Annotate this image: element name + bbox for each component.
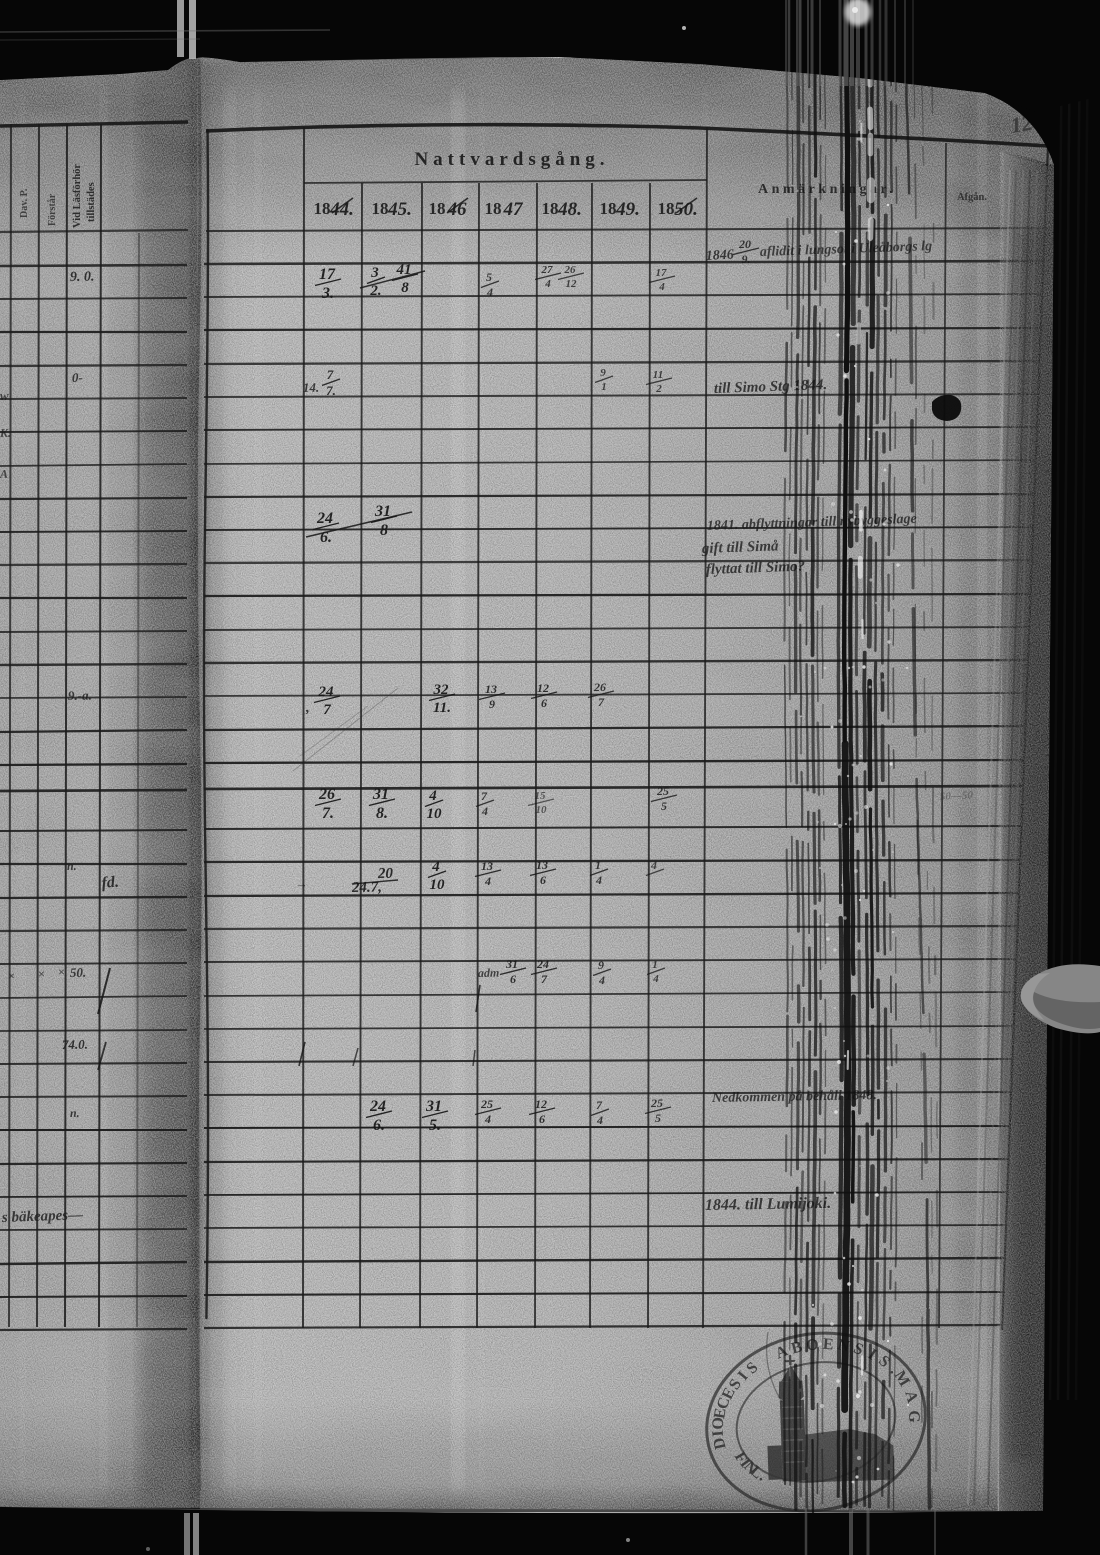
svg-text:7.: 7. (322, 805, 334, 822)
svg-text:44.: 44. (329, 199, 354, 220)
svg-text:4: 4 (658, 281, 665, 293)
svg-text:s bäkeapes—: s bäkeapes— (1, 1207, 84, 1226)
svg-text:6: 6 (541, 696, 547, 710)
svg-text:4: 4 (544, 278, 551, 290)
svg-text:Afgån.: Afgån. (957, 192, 987, 203)
svg-text:8: 8 (401, 280, 409, 296)
svg-text:18: 18 (485, 199, 502, 218)
svg-text:18: 18 (372, 199, 389, 218)
svg-text:Dav. P.: Dav. P. (19, 188, 30, 218)
svg-text:12: 12 (537, 681, 549, 695)
svg-text:K.: K. (0, 426, 11, 440)
svg-text:9.-a.: 9.-a. (68, 688, 92, 703)
svg-text:9: 9 (489, 697, 495, 711)
svg-text:9: 9 (600, 367, 606, 379)
svg-text:7: 7 (481, 789, 488, 803)
svg-text:25: 25 (650, 1096, 663, 1110)
svg-text:w: w (0, 388, 9, 403)
svg-text:×: × (8, 969, 15, 983)
svg-text:49.: 49. (615, 199, 640, 220)
svg-text:7: 7 (327, 367, 334, 382)
svg-text:13: 13 (481, 859, 493, 873)
svg-text:45.: 45. (387, 199, 412, 220)
svg-text:20: 20 (738, 237, 751, 251)
svg-text:1: 1 (652, 959, 658, 971)
svg-text:5: 5 (661, 799, 667, 813)
svg-text:×: × (58, 965, 65, 979)
svg-text:15: 15 (535, 790, 547, 802)
svg-text:9. 0.: 9. 0. (70, 270, 95, 285)
svg-text:6: 6 (539, 1112, 545, 1126)
svg-text:50.: 50. (674, 199, 698, 220)
svg-text:9.: 9. (742, 252, 751, 266)
svg-text:Anmärkningar.: Anmärkningar. (758, 182, 896, 197)
svg-text:4: 4 (484, 874, 491, 888)
svg-text:18: 18 (658, 199, 675, 218)
svg-text:4: 4 (650, 858, 657, 872)
svg-text:11: 11 (653, 369, 663, 381)
svg-text:7: 7 (598, 695, 605, 709)
svg-text:fd.: fd. (101, 874, 120, 892)
svg-text:5.: 5. (429, 1117, 441, 1134)
svg-text:1846: 1846 (705, 248, 734, 264)
svg-text:6: 6 (510, 972, 516, 986)
svg-text:4: 4 (431, 859, 440, 875)
svg-text:1: 1 (595, 858, 601, 872)
svg-text:1844. till Lumijoki.: 1844. till Lumijoki. (705, 1195, 832, 1214)
svg-text:24: 24 (536, 957, 549, 971)
svg-text:50.: 50. (70, 965, 87, 980)
svg-text:4: 4 (428, 788, 437, 804)
svg-text:7.: 7. (326, 383, 336, 398)
svg-text:8: 8 (380, 522, 388, 539)
svg-text:10: 10 (427, 806, 443, 822)
svg-text:A: A (0, 467, 8, 481)
svg-text:5: 5 (486, 270, 492, 284)
svg-text:7: 7 (596, 1098, 603, 1112)
svg-text:4: 4 (486, 285, 493, 299)
svg-text:11.: 11. (433, 700, 451, 716)
svg-text:26: 26 (564, 264, 577, 276)
svg-text:25: 25 (656, 784, 669, 798)
svg-text:4: 4 (481, 804, 488, 818)
svg-text:48.: 48. (557, 199, 582, 220)
svg-text:G: G (905, 1410, 922, 1423)
svg-text:74.0.: 74.0. (62, 1037, 88, 1052)
svg-text:tillstädes: tillstädes (86, 182, 97, 222)
svg-text:9: 9 (598, 958, 604, 972)
svg-text:n.: n. (70, 1106, 80, 1120)
svg-text:12: 12 (566, 278, 578, 290)
svg-text:6.: 6. (373, 1117, 385, 1134)
svg-text:2: 2 (655, 383, 662, 395)
svg-text:n.: n. (67, 859, 77, 873)
svg-text:14.: 14. (303, 380, 320, 395)
svg-text:13: 13 (485, 682, 497, 696)
svg-text:18: 18 (600, 199, 617, 218)
svg-text:17: 17 (656, 267, 668, 279)
svg-text:Förstår: Förstår (47, 193, 58, 226)
svg-text:46: 46 (447, 199, 468, 220)
svg-text:25: 25 (480, 1097, 493, 1111)
svg-text:0-: 0- (72, 370, 83, 385)
svg-text:18: 18 (542, 199, 559, 218)
svg-text:7: 7 (541, 972, 548, 986)
svg-text:3.: 3. (321, 285, 334, 302)
svg-text:31: 31 (505, 957, 518, 971)
svg-text:7: 7 (323, 702, 331, 718)
svg-text:→: → (295, 876, 308, 891)
svg-text:18: 18 (314, 199, 331, 218)
svg-text:4: 4 (595, 873, 602, 887)
svg-text:gift till Simå: gift till Simå (701, 538, 780, 557)
svg-text:5: 5 (655, 1111, 661, 1125)
svg-text:Vid Läsförhör: Vid Läsförhör (72, 164, 83, 228)
svg-text:13: 13 (536, 858, 548, 872)
svg-text:adm: adm (478, 966, 500, 980)
svg-text:4: 4 (598, 973, 605, 987)
svg-text:18: 18 (429, 199, 446, 218)
svg-text:1: 1 (601, 381, 607, 393)
svg-text:,: , (305, 700, 310, 716)
svg-text:4: 4 (596, 1113, 603, 1127)
svg-text:50—50: 50—50 (940, 789, 974, 803)
svg-text:4: 4 (652, 973, 659, 985)
svg-text:E: E (822, 1336, 834, 1354)
svg-text:47: 47 (503, 199, 525, 220)
svg-text:8.: 8. (376, 805, 388, 822)
svg-text:10: 10 (430, 877, 446, 893)
svg-text:3: 3 (370, 265, 379, 281)
svg-text:27: 27 (541, 264, 554, 276)
svg-text:4: 4 (484, 1112, 491, 1126)
svg-text:12: 12 (535, 1097, 547, 1111)
svg-text:26: 26 (593, 680, 606, 694)
svg-text:6: 6 (540, 873, 546, 887)
svg-text:10: 10 (536, 804, 548, 816)
svg-text:Nattvardsgång.: Nattvardsgång. (414, 149, 609, 170)
svg-text:×: × (38, 967, 45, 981)
